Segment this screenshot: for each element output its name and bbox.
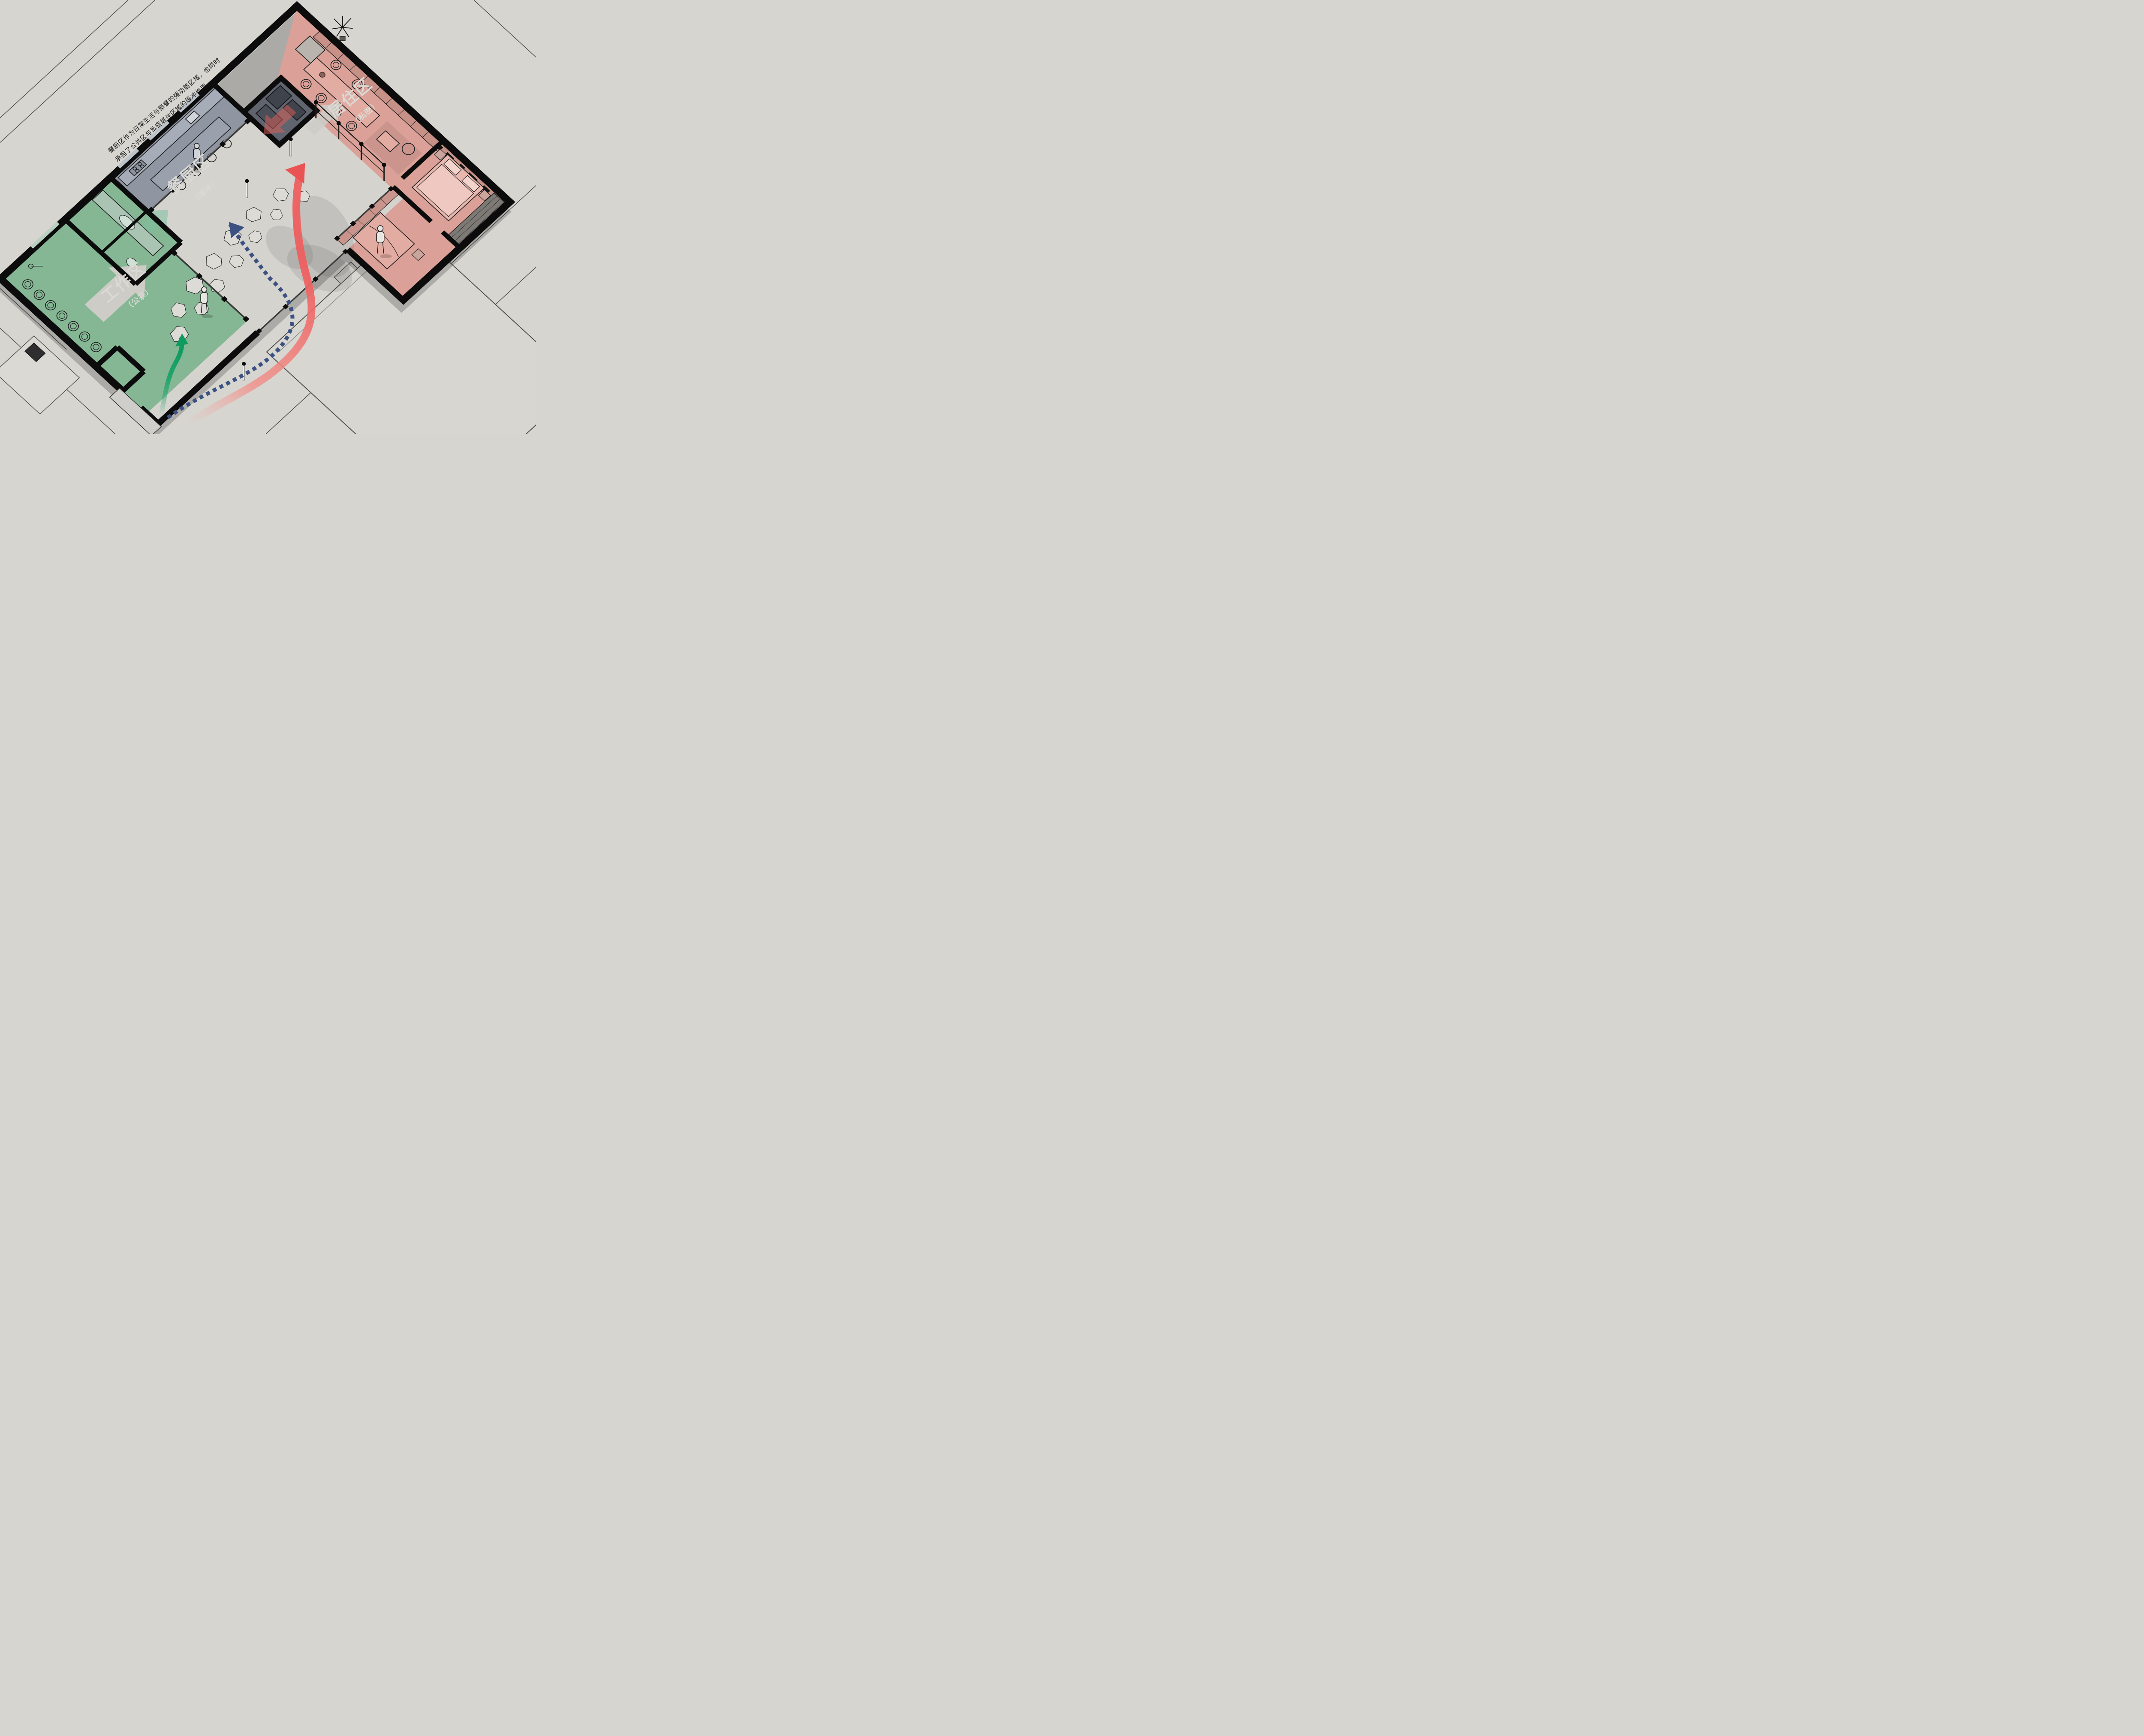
diagram-canvas: 餐厨区作为日常生活与聚餐的强功能区域，也同时 承担了公共区与私密居住区域的缓冲作… (0, 0, 536, 434)
axonometric-diagram: 餐厨区作为日常生活与聚餐的强功能区域，也同时 承担了公共区与私密居住区域的缓冲作… (0, 0, 536, 434)
